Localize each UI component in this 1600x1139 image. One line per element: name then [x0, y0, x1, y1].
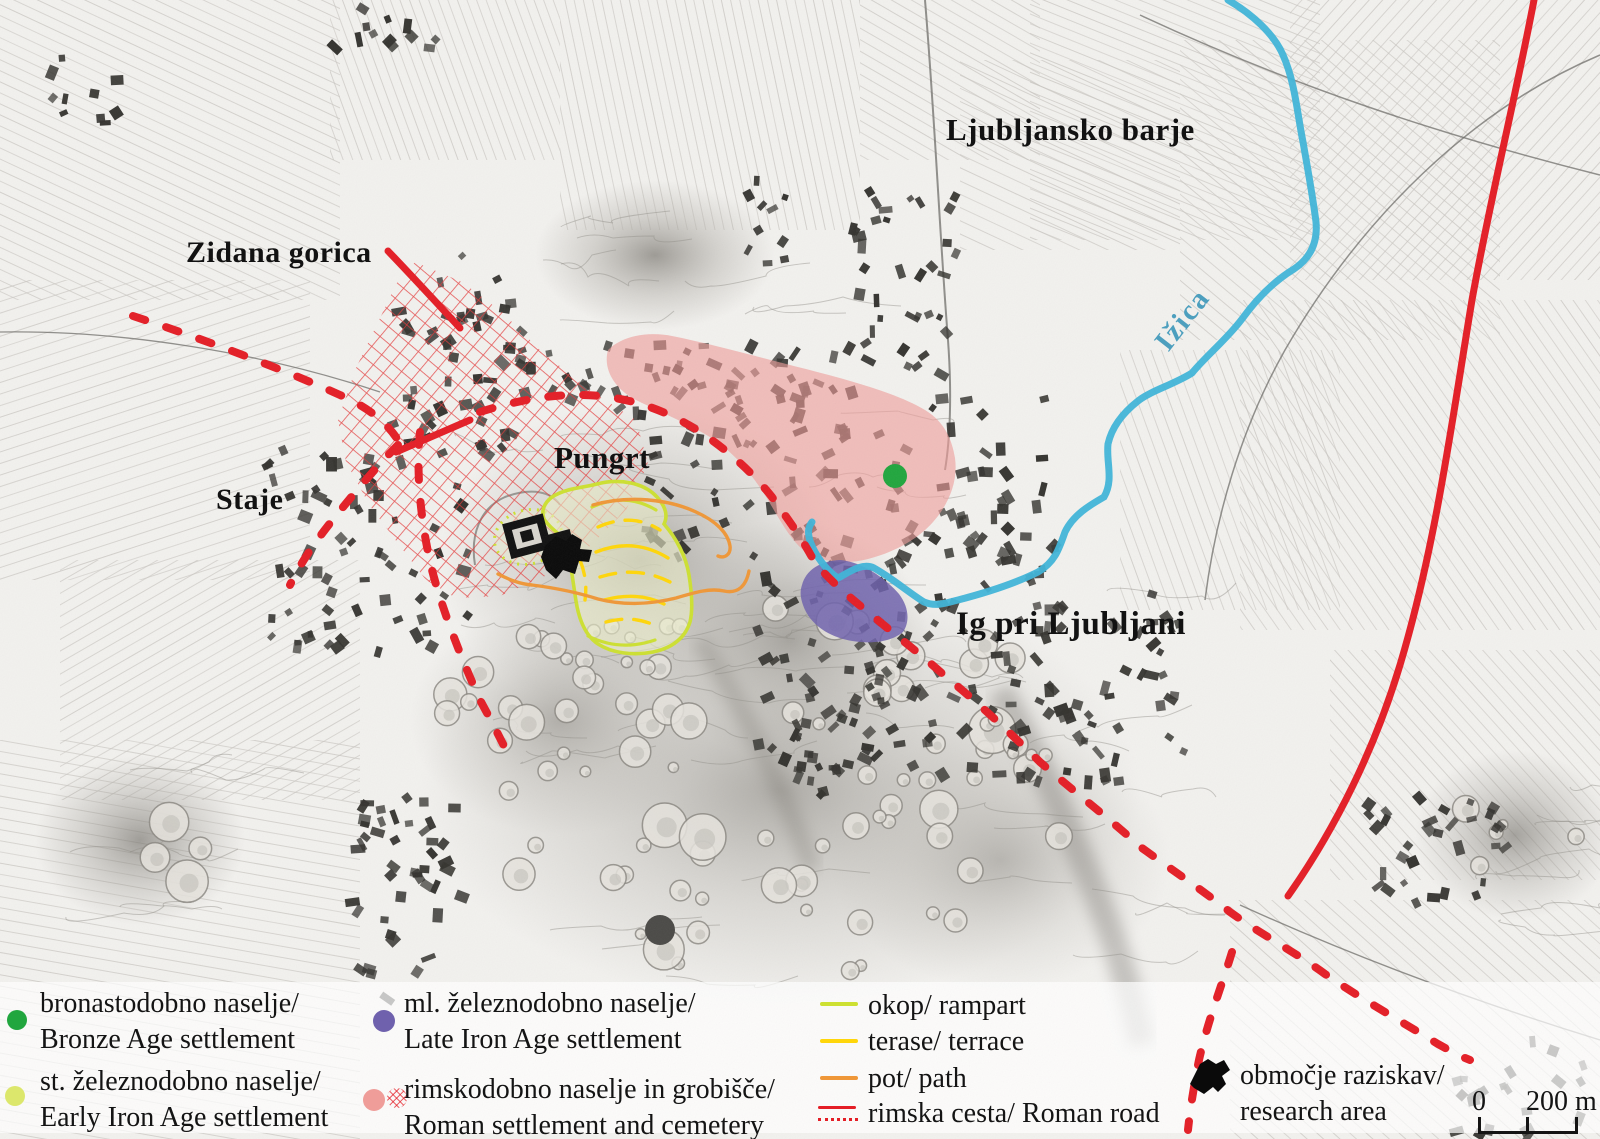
legend-label: bronastodobno naselje/: [40, 986, 299, 1022]
legend-label: območje raziskav/: [1240, 1058, 1444, 1094]
legend-label: st. železnodobno naselje/: [40, 1064, 328, 1100]
legend-label: rimska cesta/ Roman road: [868, 1096, 1160, 1132]
legend-research-area-icon: [1186, 1056, 1238, 1102]
legend-label: pot/ path: [868, 1061, 967, 1097]
map-label-ig-pri-ljubljani: Ig pri Ljubljani: [956, 606, 1186, 643]
map-graphics: [0, 0, 1600, 1139]
legend-dot-roman-settlement: [363, 1089, 385, 1111]
legend-label: ml. železnodobno naselje/: [404, 986, 696, 1022]
legend-dot-late-iron-age: [373, 1010, 395, 1032]
legend-item-roman-settlement: rimskodobno naselje in grobišče/ Roman s…: [404, 1072, 775, 1139]
legend-label: Late Iron Age settlement: [404, 1022, 696, 1058]
map-label-staje: Staje: [216, 483, 283, 517]
scale-zero-label: 0: [1472, 1086, 1486, 1118]
archaeological-map: Zidana gorica Ljubljansko barje Staje Pu…: [0, 0, 1600, 1139]
legend-label: terase/ terrace: [868, 1024, 1024, 1060]
legend-item-rampart: okop/ rampart: [868, 988, 1026, 1024]
legend-item-path: pot/ path: [868, 1061, 967, 1097]
legend-dot-early-iron-age: [5, 1086, 25, 1106]
legend-label: Early Iron Age settlement: [40, 1100, 328, 1136]
legend-line-roman-road-dotted: [818, 1118, 858, 1121]
map-label-zidana-gorica: Zidana gorica: [186, 236, 372, 270]
legend-item-terrace: terase/ terrace: [868, 1024, 1024, 1060]
map-label-pungrt: Pungrt: [554, 440, 650, 476]
scale-distance-label: 200 m: [1526, 1086, 1597, 1118]
legend-line-rampart: [820, 1002, 858, 1006]
legend-line-path: [820, 1076, 858, 1080]
legend-label: Roman settlement and cemetery: [404, 1108, 775, 1139]
legend-label: research area: [1240, 1094, 1444, 1130]
legend-item-early-iron-age: st. železnodobno naselje/ Early Iron Age…: [40, 1064, 328, 1136]
paper-grain: [0, 0, 1600, 1139]
legend-label: okop/ rampart: [868, 988, 1026, 1024]
legend-line-terrace: [820, 1039, 858, 1043]
legend-item-roman-road: rimska cesta/ Roman road: [868, 1096, 1160, 1132]
legend-label: Bronze Age settlement: [40, 1022, 299, 1058]
legend-item-research-area: območje raziskav/ research area: [1240, 1058, 1444, 1130]
legend-dot-bronze-age: [7, 1010, 27, 1030]
legend-label: rimskodobno naselje in grobišče/: [404, 1072, 775, 1108]
legend-line-roman-road-solid: [818, 1106, 856, 1109]
legend-item-bronze-age: bronastodobno naselje/ Bronze Age settle…: [40, 986, 299, 1058]
scale-bar: [1478, 1117, 1578, 1134]
map-label-ljubljansko-barje: Ljubljansko barje: [946, 112, 1195, 148]
legend-item-late-iron-age: ml. železnodobno naselje/ Late Iron Age …: [404, 986, 696, 1058]
